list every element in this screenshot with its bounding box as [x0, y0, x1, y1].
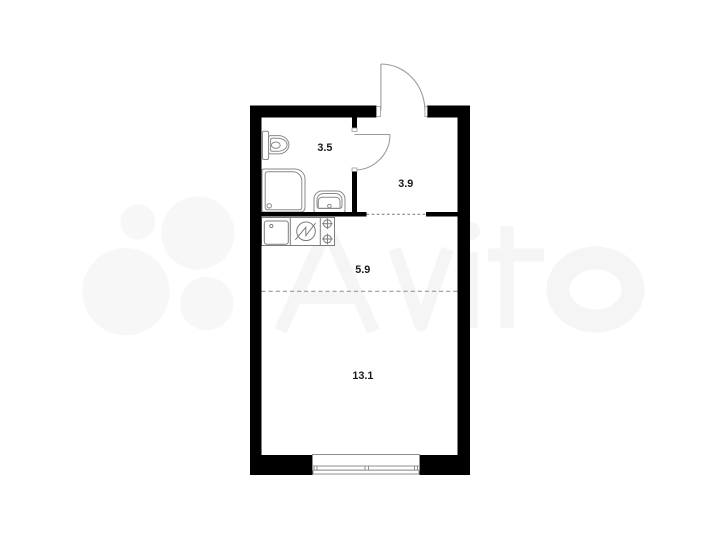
svg-text:5.9: 5.9 — [355, 264, 370, 276]
svg-text:13.1: 13.1 — [352, 370, 373, 382]
svg-text:3.9: 3.9 — [398, 178, 413, 190]
svg-text:3.5: 3.5 — [317, 142, 332, 154]
